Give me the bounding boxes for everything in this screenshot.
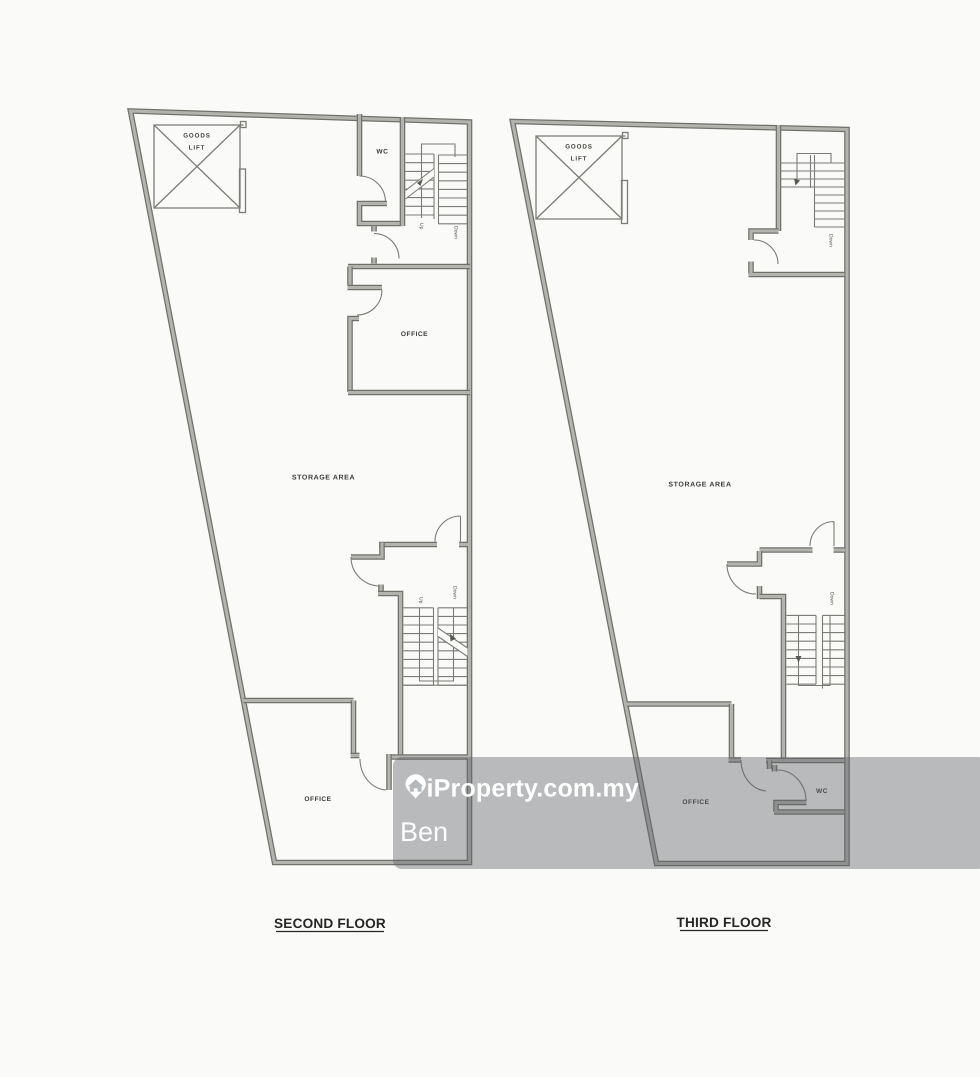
svg-text:Down: Down <box>829 592 835 605</box>
svg-text:GOODS: GOODS <box>183 133 211 140</box>
svg-text:SECOND FLOOR: SECOND FLOOR <box>274 916 386 931</box>
svg-text:Ben: Ben <box>400 817 448 847</box>
svg-text:STORAGE AREA: STORAGE AREA <box>292 475 355 482</box>
svg-text:LIFT: LIFT <box>571 156 588 163</box>
svg-text:GOODS: GOODS <box>565 144 593 151</box>
svg-text:iProperty.com.my: iProperty.com.my <box>427 775 640 803</box>
svg-text:WC: WC <box>376 149 388 156</box>
svg-text:Down: Down <box>453 226 459 239</box>
svg-text:LIFT: LIFT <box>189 145 206 152</box>
svg-text:Down: Down <box>452 586 458 599</box>
svg-text:OFFICE: OFFICE <box>304 796 331 803</box>
svg-text:THIRD FLOOR: THIRD FLOOR <box>676 915 771 930</box>
svg-text:STORAGE AREA: STORAGE AREA <box>668 482 731 489</box>
svg-text:Up: Up <box>418 597 424 604</box>
svg-text:OFFICE: OFFICE <box>401 331 428 338</box>
svg-text:Up: Up <box>418 223 424 230</box>
svg-text:Down: Down <box>828 234 834 247</box>
